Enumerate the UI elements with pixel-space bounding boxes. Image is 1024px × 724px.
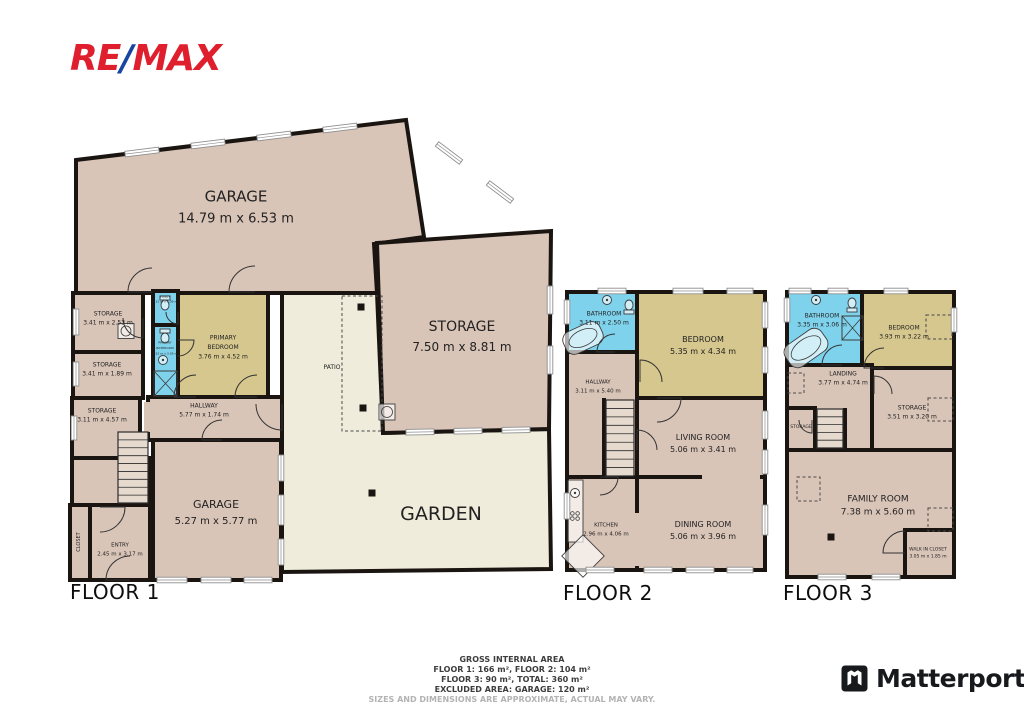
circle (574, 492, 576, 494)
window (502, 427, 530, 433)
window (547, 346, 553, 374)
room-label: PRIMARY (210, 335, 237, 342)
window (872, 574, 900, 580)
area-summary: GROSS INTERNAL AREA FLOOR 1: 166 m², FLO… (262, 655, 762, 705)
window (564, 493, 570, 519)
room-label: STORAGE (88, 407, 117, 414)
room-label: 5.27 m x 5.77 m (175, 516, 258, 527)
room-label: GARAGE (193, 498, 239, 511)
window (673, 288, 703, 294)
room-label: ENTRY (111, 543, 129, 549)
window (564, 300, 570, 324)
room-label: PRIMARY (158, 341, 171, 345)
wall-opening (144, 402, 153, 432)
circle (606, 299, 608, 301)
room-label: FAMILY ROOM (847, 494, 908, 504)
post-mark (828, 534, 835, 541)
room-label: CLOSET (76, 531, 82, 551)
room-label: 7.38 m x 5.60 m (841, 508, 915, 518)
window (818, 574, 846, 580)
window (406, 429, 434, 435)
floor-2: BATHROOM3.11 m x 2.50 mBEDROOM5.35 m x 4… (560, 288, 768, 577)
ellipse (848, 298, 856, 308)
room-label: STORAGE (429, 319, 496, 335)
room-label: 3.11 m x 4.57 m (77, 417, 127, 424)
room-label: 5.06 m x 3.41 m (670, 445, 736, 454)
circle (162, 359, 164, 361)
window (784, 298, 790, 322)
window (884, 288, 908, 294)
sink-fixture-icon (603, 296, 612, 305)
window (644, 567, 672, 573)
room-label: 3.11 m x 2.50 m (579, 320, 629, 327)
window (762, 302, 768, 328)
window (762, 411, 768, 439)
line (437, 144, 461, 162)
post-mark (369, 490, 376, 497)
sink-fixture-icon (812, 296, 821, 305)
floorplan-sheet: { "branding": { "remax": { "re": "RE", "… (0, 0, 1024, 724)
circle (815, 299, 817, 301)
room-label: 2.96 m x 4.06 m (583, 531, 628, 537)
window (762, 347, 768, 373)
room-label: BATHROOM (587, 310, 622, 317)
toilet-fixture-icon (624, 300, 634, 314)
floor-1-label: FLOOR 1 (70, 580, 160, 604)
room-label: 5.35 m x 4.34 m (670, 347, 736, 356)
window (435, 142, 462, 165)
room-label: 5.06 m x 3.96 m (670, 532, 736, 541)
area-summary-title: GROSS INTERNAL AREA (262, 655, 762, 665)
wall-opening (633, 513, 641, 566)
window (73, 362, 79, 386)
room-walk-in-closet (905, 530, 954, 577)
room-label: STORAGE (93, 361, 122, 368)
ellipse (625, 300, 633, 310)
sink-fixture-icon (159, 356, 168, 365)
stairs (606, 400, 634, 476)
post-mark (360, 405, 367, 412)
window (762, 450, 768, 474)
room-label: GARDEN (400, 503, 482, 525)
room-label: 5.77 m x 1.74 m (179, 412, 229, 419)
matterport-icon (841, 665, 868, 692)
window (727, 567, 753, 573)
room-label: HALLWAY (190, 402, 218, 409)
area-summary-line3: FLOOR 3: 90 m², TOTAL: 360 m² (262, 675, 762, 685)
room-label: LANDING (829, 370, 857, 377)
floor-3: BATHROOM3.35 m x 3.06 mBEDROOM3.93 m x 3… (781, 288, 957, 580)
room-label: BEDROOM (207, 344, 238, 351)
room-label: LIVING ROOM (676, 433, 731, 442)
window (201, 577, 231, 583)
window (951, 308, 957, 332)
room-label: STORAGE (94, 310, 123, 317)
room-label: 3.41 m x 2.53 m (83, 320, 133, 327)
toilet-fixture-icon (847, 298, 857, 312)
window (486, 181, 513, 204)
area-summary-line4: EXCLUDED AREA: GARAGE: 120 m² (262, 685, 762, 695)
room-label: 14.79 m x 6.53 m (178, 212, 294, 227)
room-label: STORAGE (898, 404, 927, 411)
room-label: GARAGE (205, 188, 268, 206)
room-garage (76, 120, 424, 293)
room-label: BEDROOM (888, 324, 919, 331)
window (157, 577, 187, 583)
post-mark (358, 304, 365, 311)
window (547, 286, 553, 314)
floor-1: GARDENGARAGE14.79 m x 6.53 mSTORAGE7.50 … (70, 120, 553, 583)
window (278, 539, 284, 565)
rect (847, 308, 857, 312)
line (488, 183, 512, 201)
window (244, 577, 272, 583)
matterport-logo: Matterport (841, 664, 1024, 693)
room-bedroom (637, 292, 765, 398)
stairs (817, 409, 843, 448)
room-label: 1.31 m x 1.09 m (153, 300, 178, 304)
stairs (118, 432, 148, 503)
window (586, 567, 614, 573)
room-label: 3.35 m x 3.06 m (797, 322, 847, 329)
room-label: STORAGE (790, 424, 812, 430)
window (278, 495, 284, 525)
wall-opening (702, 473, 760, 481)
room-label: 3.11 m x 5.40 m (575, 388, 620, 394)
room-label: 3.93 m x 3.22 m (879, 334, 929, 341)
matterport-wordmark: Matterport (876, 664, 1024, 693)
room-label: WALK IN CLOSET (909, 546, 947, 552)
window (278, 455, 284, 481)
window (73, 309, 79, 335)
window (686, 567, 714, 573)
room-label: 1.52 m x 3.05 m (153, 351, 178, 355)
room-label: DINING ROOM (675, 520, 732, 529)
window (828, 288, 848, 294)
room-label: HALLWAY (585, 380, 611, 386)
washer-fixture-icon (379, 404, 395, 420)
sink-fixture-icon (571, 489, 580, 498)
room-label: 7.50 m x 8.81 m (412, 340, 511, 354)
room-label: 3.41 m x 1.89 m (82, 371, 132, 378)
rect (160, 329, 170, 333)
window (454, 428, 482, 434)
window (789, 288, 811, 294)
room-label: BEDROOM (682, 335, 724, 344)
area-summary-disclaimer: SIZES AND DIMENSIONS ARE APPROXIMATE, AC… (262, 695, 762, 705)
room-label: BATHROOM (805, 312, 840, 319)
room-label: BATHROOM (156, 346, 174, 350)
room-label: 3.76 m x 4.52 m (198, 353, 248, 360)
window (598, 288, 626, 294)
room-label: KITCHEN (594, 523, 618, 529)
window (71, 416, 77, 440)
room-label: 3.77 m x 4.74 m (818, 380, 868, 387)
room-label: TOILET (159, 294, 171, 298)
area-summary-line2: FLOOR 1: 166 m², FLOOR 2: 104 m² (262, 665, 762, 675)
window (727, 288, 753, 294)
rect (624, 310, 634, 314)
room-label: 3.51 m x 3.20 m (887, 414, 937, 421)
window (762, 505, 768, 535)
room-label: 3.05 m x 1.85 m (909, 554, 946, 560)
floor-3-label: FLOOR 3 (783, 581, 873, 605)
floor-plan-canvas: GARDENGARAGE14.79 m x 6.53 mSTORAGE7.50 … (0, 0, 1024, 724)
floor-2-label: FLOOR 2 (563, 581, 653, 605)
area-label: PATIO (323, 364, 340, 371)
room-label: 2.45 m x 3.17 m (97, 551, 142, 557)
